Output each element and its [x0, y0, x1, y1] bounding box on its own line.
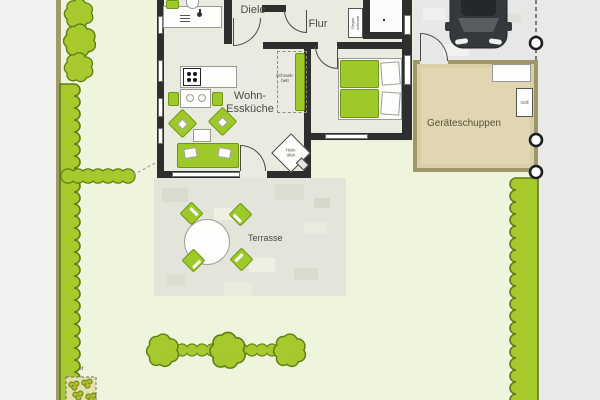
bathroom-drain: [383, 19, 385, 21]
bathroom-floor: [370, 0, 402, 32]
faucet-icon: [199, 9, 201, 14]
wall-connector: [304, 140, 311, 178]
dining-chair: [168, 92, 179, 106]
dining-chair: [212, 92, 223, 106]
window: [158, 128, 163, 144]
window: [158, 60, 163, 82]
bed-pillow: [380, 61, 401, 85]
fold-bed: [295, 53, 305, 111]
dishwasher-icon: [180, 15, 190, 24]
herb-garden-label: Kräuter: [64, 366, 84, 373]
coffee-table: [193, 129, 211, 142]
bed-pillow: [380, 91, 401, 115]
window: [325, 134, 368, 139]
sofa: [177, 143, 239, 168]
shed-label: Geräteschuppen: [418, 118, 510, 130]
flur-label: Flur: [303, 18, 333, 31]
bed-duvet: [340, 89, 379, 118]
wall-flur-bedroom-b: [337, 42, 402, 49]
bed-duvet: [340, 60, 379, 88]
fold-bed-label: Schrank- bett: [274, 73, 296, 84]
window: [158, 98, 163, 117]
shelf-cabinet: Regal- schrank: [348, 8, 363, 38]
property-boundary-line: [56, 0, 61, 400]
window: [404, 55, 411, 85]
window: [404, 15, 411, 35]
terrace-door-gap: [240, 171, 267, 178]
street: [538, 0, 600, 400]
terrace-label: Terrasse: [248, 233, 283, 244]
diele-label: Diele: [238, 4, 268, 17]
dining-table: [180, 89, 211, 108]
kitchen-counter: [163, 6, 222, 28]
window: [172, 172, 240, 177]
wall-kitchen-diele: [224, 0, 232, 44]
plate: [198, 94, 206, 102]
plate: [186, 94, 194, 102]
cooktop: [183, 68, 201, 86]
floor-plan: Terrasse Grill Geräteschuppen: [0, 0, 600, 400]
grill-label: Grill: [521, 100, 529, 105]
kitchen-tray: [166, 0, 179, 9]
shed-workbench: [492, 64, 531, 82]
grill: Grill: [516, 88, 533, 117]
living-kitchen-label: Wohn- Essküche: [224, 90, 276, 116]
